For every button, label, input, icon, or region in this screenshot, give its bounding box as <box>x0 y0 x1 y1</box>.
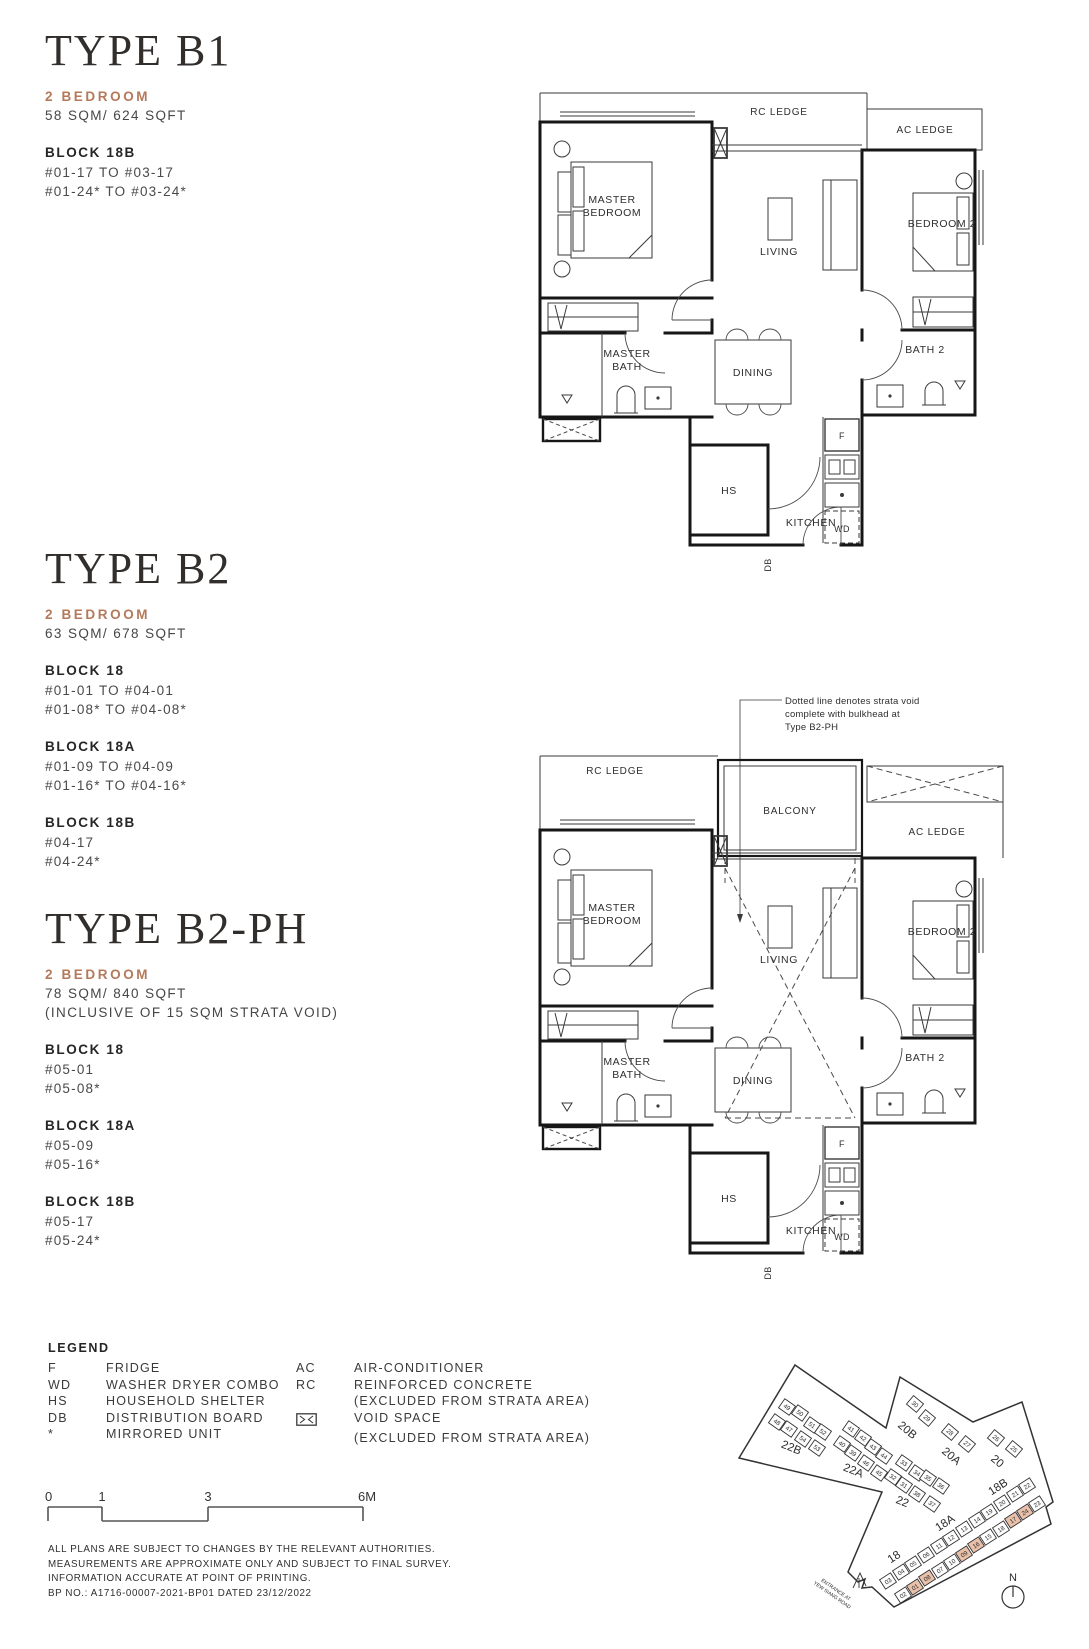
unit-range: #05-08* <box>45 1079 338 1098</box>
type-b2ph-area-note: (INCLUSIVE OF 15 SQM STRATA VOID) <box>45 1003 338 1022</box>
site-map: 0201080710091615181724230304050611121314… <box>700 1350 1089 1649</box>
type-b2-block-18b: BLOCK 18B #04-17 #04-24* <box>45 812 231 871</box>
site-block-label-20: 20 <box>988 1453 1006 1470</box>
unit-range: #05-01 <box>45 1060 338 1079</box>
site-unit-53: 53 <box>809 1440 826 1456</box>
site-unit-29: 29 <box>918 1410 935 1427</box>
type-b2-title: TYPE B2 <box>45 546 231 592</box>
unit-range: #05-16* <box>45 1155 338 1174</box>
site-unit-28: 28 <box>941 1424 958 1441</box>
svg-text:complete with bulkhead at: complete with bulkhead at <box>785 709 900 720</box>
block-name: BLOCK 18B <box>45 812 231 833</box>
type-b1-bedroom-label: 2 BEDROOM <box>45 88 231 106</box>
legend-desc: FRIDGE <box>106 1360 160 1377</box>
unit-range: #01-01 TO #04-01 <box>45 681 231 700</box>
disclaimer-line: MEASUREMENTS ARE APPROXIMATE ONLY AND SU… <box>48 1558 451 1573</box>
legend-heading: LEGEND <box>48 1341 590 1355</box>
legend-abbr: F <box>48 1360 106 1377</box>
ac-ledge-label: AC LEDGE <box>897 125 954 136</box>
unit-range: #01-24* TO #03-24* <box>45 182 231 201</box>
legend-desc: (EXCLUDED FROM STRATA AREA) <box>354 1393 590 1410</box>
type-b2ph-section: TYPE B2-PH 2 BEDROOM 78 SQM/ 840 SQFT (I… <box>45 906 338 1250</box>
legend-desc: MIRRORED UNIT <box>106 1426 222 1443</box>
unit-range: #01-09 TO #04-09 <box>45 757 231 776</box>
floorplan-type-b1: MASTER BEDROOM LIVING BEDROOM 2 <box>505 85 990 585</box>
balcony-label: BALCONY <box>763 806 816 817</box>
site-unit-30: 30 <box>906 1396 923 1413</box>
legend-abbr: DB <box>48 1410 106 1427</box>
unit-range: #04-24* <box>45 852 231 871</box>
type-b1-area: 58 SQM/ 624 SQFT <box>45 106 231 125</box>
block-name: BLOCK 18A <box>45 736 231 757</box>
legend-desc: VOID SPACE <box>354 1410 441 1427</box>
type-b2-bedroom-label: 2 BEDROOM <box>45 606 231 624</box>
legend-abbr: HS <box>48 1393 106 1410</box>
svg-text:Dotted line denotes strata voi: Dotted line denotes strata void <box>785 696 920 707</box>
disclaimer-line: BP NO.: A1716-00007-2021-BP01 DATED 23/1… <box>48 1587 451 1602</box>
type-b2ph-block-18b: BLOCK 18B #05-17 #05-24* <box>45 1191 338 1250</box>
rc-ledge-label-2: RC LEDGE <box>586 766 644 777</box>
type-b2-block-18a: BLOCK 18A #01-09 TO #04-09 #01-16* TO #0… <box>45 736 231 795</box>
type-b2ph-title: TYPE B2-PH <box>45 906 338 952</box>
disclaimer-line: ALL PLANS ARE SUBJECT TO CHANGES BY THE … <box>48 1543 451 1558</box>
unit-range: #05-17 <box>45 1212 338 1231</box>
rc-ledge-label: RC LEDGE <box>750 107 808 118</box>
annotation-arrowhead <box>737 914 743 923</box>
type-b1-block-18b: BLOCK 18B #01-17 TO #03-17 #01-24* TO #0… <box>45 142 231 201</box>
scale-tick-0: 0 <box>45 1489 52 1504</box>
block-name: BLOCK 18 <box>45 660 231 681</box>
type-b1-title: TYPE B1 <box>45 28 231 74</box>
site-block-label-20A: 20A <box>939 1446 963 1469</box>
scale-tick-3: 6M <box>358 1489 376 1504</box>
floorplan-type-b2: Dotted line denotes strata void complete… <box>500 688 1012 1280</box>
block-name: BLOCK 18B <box>45 1191 338 1212</box>
legend-right-column: ACAIR-CONDITIONER RCREINFORCED CONCRETE … <box>296 1360 590 1447</box>
legend: LEGEND FFRIDGE WDWASHER DRYER COMBO HSHO… <box>48 1341 590 1447</box>
unit-range: #05-09 <box>45 1136 338 1155</box>
unit-range: #05-24* <box>45 1231 338 1250</box>
scale-tick-1: 1 <box>98 1489 105 1504</box>
site-unit-20: 20 <box>994 1495 1011 1511</box>
north-indicator: N <box>1002 1572 1024 1608</box>
legend-desc: DISTRIBUTION BOARD <box>106 1410 264 1427</box>
legend-abbr: RC <box>296 1377 354 1394</box>
legend-desc: (EXCLUDED FROM STRATA AREA) <box>354 1430 590 1447</box>
site-unit-33: 33 <box>896 1455 913 1471</box>
unit-range: #01-16* TO #04-16* <box>45 776 231 795</box>
site-block-label-18: 18 <box>886 1549 903 1566</box>
site-unit-26: 26 <box>987 1430 1004 1447</box>
disclaimer-line: INFORMATION ACCURATE AT POINT OF PRINTIN… <box>48 1572 451 1587</box>
legend-left-column: FFRIDGE WDWASHER DRYER COMBO HSHOUSEHOLD… <box>48 1360 296 1447</box>
svg-text:N: N <box>1009 1572 1017 1584</box>
entrance-label: ENTRANCE ATYEW SIANG ROAD <box>812 1575 856 1611</box>
legend-abbr: * <box>48 1426 106 1443</box>
site-unit-45: 45 <box>871 1465 888 1481</box>
ac-ledge-label-2: AC LEDGE <box>909 827 966 838</box>
site-block-label-20B: 20B <box>895 1420 919 1443</box>
unit-range: #01-08* TO #04-08* <box>45 700 231 719</box>
brochure-page: TYPE B1 2 BEDROOM 58 SQM/ 624 SQFT BLOCK… <box>0 0 1089 1649</box>
scale-bar: 0 1 3 6M <box>45 1488 390 1530</box>
site-block-label-18B: 18B <box>987 1477 1011 1498</box>
legend-desc: HOUSEHOLD SHELTER <box>106 1393 266 1410</box>
type-b1-section: TYPE B1 2 BEDROOM 58 SQM/ 624 SQFT BLOCK… <box>45 28 231 201</box>
site-unit-06: 06 <box>918 1547 935 1563</box>
site-unit-25: 25 <box>1005 1441 1022 1458</box>
legend-abbr <box>296 1410 354 1431</box>
site-unit-03: 03 <box>880 1573 897 1589</box>
type-b2ph-block-18: BLOCK 18 #05-01 #05-08* <box>45 1039 338 1098</box>
block-name: BLOCK 18 <box>45 1039 338 1060</box>
legend-abbr: AC <box>296 1360 354 1377</box>
site-unit-36: 36 <box>933 1478 950 1494</box>
unit-range: #01-17 TO #03-17 <box>45 163 231 182</box>
scale-bar-line <box>48 1507 363 1521</box>
site-unit-13: 13 <box>956 1521 973 1537</box>
disclaimer: ALL PLANS ARE SUBJECT TO CHANGES BY THE … <box>48 1543 451 1601</box>
site-unit-27: 27 <box>958 1436 975 1453</box>
type-b2ph-bedroom-label: 2 BEDROOM <box>45 966 338 984</box>
legend-desc: REINFORCED CONCRETE <box>354 1377 533 1394</box>
site-unit-37: 37 <box>924 1496 941 1512</box>
type-b2ph-block-18a: BLOCK 18A #05-09 #05-16* <box>45 1115 338 1174</box>
legend-desc: AIR-CONDITIONER <box>354 1360 485 1377</box>
type-b2-block-18: BLOCK 18 #01-01 TO #04-01 #01-08* TO #04… <box>45 660 231 719</box>
block-name: BLOCK 18B <box>45 142 231 163</box>
block-name: BLOCK 18A <box>45 1115 338 1136</box>
scale-tick-2: 3 <box>204 1489 211 1504</box>
plan2-ledges: RC LEDGE BALCONY AC LEDGE <box>540 756 1003 858</box>
svg-text:Type B2-PH: Type B2-PH <box>785 722 838 733</box>
type-b2-section: TYPE B2 2 BEDROOM 63 SQM/ 678 SQFT BLOCK… <box>45 546 231 871</box>
legend-abbr: WD <box>48 1377 106 1394</box>
type-b2-area: 63 SQM/ 678 SQFT <box>45 624 231 643</box>
unit-range: #04-17 <box>45 833 231 852</box>
site-block-label-22: 22 <box>894 1494 910 1510</box>
site-unit-38: 38 <box>909 1486 926 1502</box>
legend-desc: WASHER DRYER COMBO <box>106 1377 280 1394</box>
void-space-icon <box>296 1413 317 1426</box>
type-b2ph-area: 78 SQM/ 840 SQFT <box>45 984 338 1003</box>
